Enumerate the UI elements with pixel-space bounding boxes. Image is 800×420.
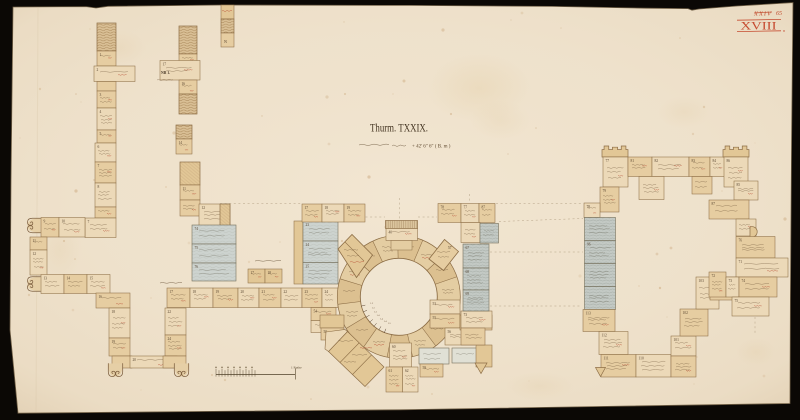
svg-text:20: 20 <box>241 290 245 294</box>
svg-text:N: N <box>224 39 227 44</box>
svg-text:113: 113 <box>586 312 591 316</box>
svg-text:25: 25 <box>306 265 310 269</box>
svg-text:17: 17 <box>170 290 174 294</box>
svg-text:67: 67 <box>466 246 470 250</box>
svg-text:23: 23 <box>306 223 310 227</box>
svg-text:55: 55 <box>433 316 437 320</box>
svg-text:18: 18 <box>112 310 116 314</box>
svg-text:17: 17 <box>305 206 309 210</box>
svg-text:18: 18 <box>325 206 329 210</box>
svg-text:3: 3 <box>100 93 102 97</box>
svg-text:9: 9 <box>44 220 46 224</box>
svg-text:81: 81 <box>631 159 635 163</box>
svg-text:78: 78 <box>441 206 445 210</box>
svg-text:40: 40 <box>389 231 393 235</box>
svg-text:102: 102 <box>683 311 689 315</box>
svg-text:24: 24 <box>306 243 310 247</box>
svg-text:21: 21 <box>262 290 266 294</box>
svg-text:73: 73 <box>464 313 468 317</box>
svg-text:53: 53 <box>433 302 437 306</box>
svg-text:56: 56 <box>448 330 452 334</box>
svg-text:61: 61 <box>389 369 393 373</box>
svg-text:19: 19 <box>347 206 351 210</box>
svg-text:11: 11 <box>33 239 37 243</box>
svg-text:82: 82 <box>655 159 659 163</box>
svg-text:85: 85 <box>737 183 741 187</box>
svg-text:86: 86 <box>727 159 731 163</box>
svg-text:65: 65 <box>776 11 782 17</box>
svg-text:2: 2 <box>97 68 99 72</box>
svg-text:17: 17 <box>163 63 167 67</box>
svg-text:7: 7 <box>88 220 90 224</box>
svg-text:87: 87 <box>712 202 716 206</box>
svg-text:69: 69 <box>466 292 470 296</box>
svg-text:101: 101 <box>674 338 680 342</box>
svg-text:73: 73 <box>729 279 733 283</box>
svg-text:112: 112 <box>602 334 607 338</box>
svg-text:XXIV: XXIV <box>753 11 772 18</box>
svg-text:20: 20 <box>133 358 137 362</box>
svg-text:76: 76 <box>739 239 743 243</box>
svg-text:16: 16 <box>99 295 103 299</box>
svg-text:74: 74 <box>195 227 199 231</box>
svg-text:77: 77 <box>606 159 610 163</box>
svg-text:96: 96 <box>587 243 591 247</box>
svg-text:68: 68 <box>466 270 470 274</box>
svg-text:13: 13 <box>44 277 48 281</box>
svg-text:+ 42' 6″ 6″ ( B. m ): + 42' 6″ 6″ ( B. m ) <box>412 145 451 150</box>
svg-text:71: 71 <box>739 260 743 264</box>
svg-text:72: 72 <box>712 274 716 278</box>
svg-text:103: 103 <box>699 279 705 283</box>
svg-text:4: 4 <box>100 110 102 114</box>
svg-text:75: 75 <box>735 299 739 303</box>
svg-text:23: 23 <box>305 290 309 294</box>
svg-text:17: 17 <box>251 271 255 275</box>
svg-text:18: 18 <box>193 290 197 294</box>
svg-text:24: 24 <box>168 337 172 341</box>
svg-text:76: 76 <box>195 265 199 269</box>
svg-text:57: 57 <box>448 246 452 250</box>
svg-text:87: 87 <box>482 206 486 210</box>
svg-text:8: 8 <box>98 185 100 189</box>
svg-text:6: 6 <box>98 145 100 149</box>
svg-text:22: 22 <box>284 290 288 294</box>
svg-text:10: 10 <box>62 220 66 224</box>
svg-text:62: 62 <box>405 369 409 373</box>
svg-text:14: 14 <box>179 141 183 145</box>
svg-text:14: 14 <box>67 277 71 281</box>
svg-text:79: 79 <box>603 189 607 193</box>
svg-text:74: 74 <box>742 279 746 283</box>
svg-text:1 Ruthe: 1 Ruthe <box>291 366 302 370</box>
svg-text:12: 12 <box>202 206 206 210</box>
svg-text:22: 22 <box>168 310 172 314</box>
svg-text:75: 75 <box>195 246 199 250</box>
svg-text:7: 7 <box>98 164 100 168</box>
svg-text:12: 12 <box>33 252 37 256</box>
svg-text:24: 24 <box>325 290 329 294</box>
svg-text:78: 78 <box>587 205 591 209</box>
svg-text:59: 59 <box>423 366 427 370</box>
svg-text:84: 84 <box>713 159 717 163</box>
svg-text:15: 15 <box>90 277 94 281</box>
svg-text:NB 1.: NB 1. <box>161 71 170 75</box>
svg-text:19: 19 <box>216 290 220 294</box>
svg-text:111: 111 <box>604 357 609 361</box>
svg-text:5: 5 <box>100 132 102 136</box>
svg-text:110: 110 <box>639 357 644 361</box>
svg-text:77: 77 <box>464 206 468 210</box>
svg-text:Thurm. TXXIX.: Thurm. TXXIX. <box>370 121 428 135</box>
svg-text:60: 60 <box>392 345 396 349</box>
